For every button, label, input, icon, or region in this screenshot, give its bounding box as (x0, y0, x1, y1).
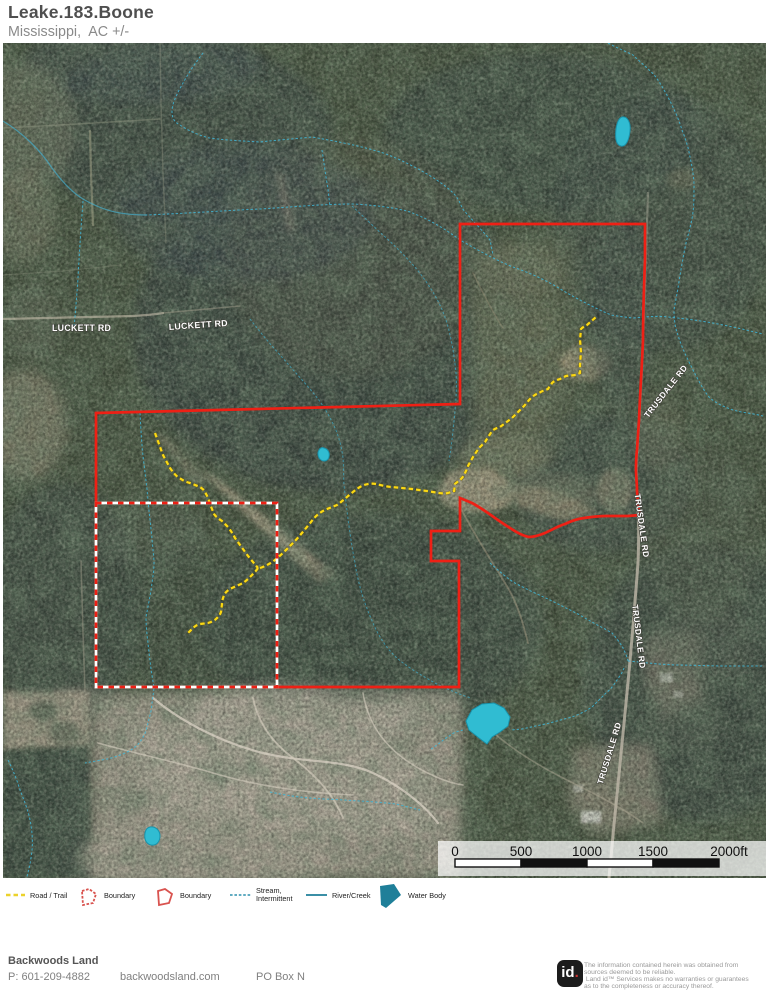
svg-text:2000ft: 2000ft (710, 844, 748, 859)
svg-text:Boundary: Boundary (104, 891, 136, 900)
svg-text:Boundary: Boundary (180, 891, 212, 900)
svg-text:0: 0 (451, 844, 459, 859)
svg-text:Intermittent: Intermittent (256, 894, 293, 903)
svg-text:Road / Trail: Road / Trail (30, 891, 68, 900)
svg-text:LUCKETT RD: LUCKETT RD (52, 323, 111, 333)
svg-text:River/Creek: River/Creek (332, 891, 371, 900)
svg-text:500: 500 (510, 844, 533, 859)
svg-text:Water Body: Water Body (408, 891, 446, 900)
svg-text:1000: 1000 (572, 844, 602, 859)
svg-text:1500: 1500 (638, 844, 668, 859)
